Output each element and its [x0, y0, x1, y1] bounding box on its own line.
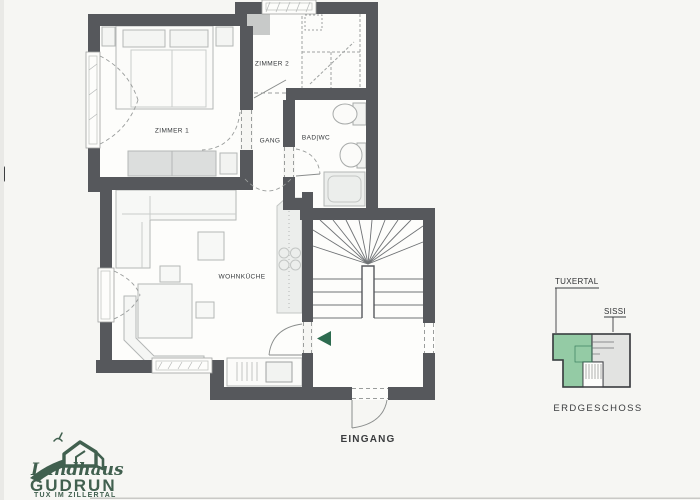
- floorplan-drawing: [0, 0, 700, 500]
- map-label-tuxertal: TUXERTAL: [555, 277, 598, 286]
- room-label-gang: GANG: [260, 138, 281, 145]
- room-label-zimmer1: ZIMMER 1: [155, 128, 189, 135]
- logo-tagline-text: TUX IM ZILLERTAL: [34, 492, 116, 499]
- sink-basin-icon: [266, 362, 292, 382]
- room-label-zimmer2: ZIMMER 2: [255, 61, 289, 68]
- entrance-label: EINGANG: [340, 434, 395, 445]
- overview-map: [553, 288, 630, 387]
- furniture-zimmer2-bed: [302, 12, 360, 90]
- map-label-sissi: SISSI: [604, 307, 626, 316]
- floor-label-erdgeschoss: ERDGESCHOSS: [553, 403, 642, 414]
- floorplan-page: ZIMMER 1 ZIMMER 2 GANG BAD|WC WOHNKÜCHE …: [0, 0, 700, 500]
- room-label-bad-wc: BAD|WC: [302, 135, 330, 142]
- room-label-wohnkueche: WOHNKÜCHE: [219, 274, 266, 281]
